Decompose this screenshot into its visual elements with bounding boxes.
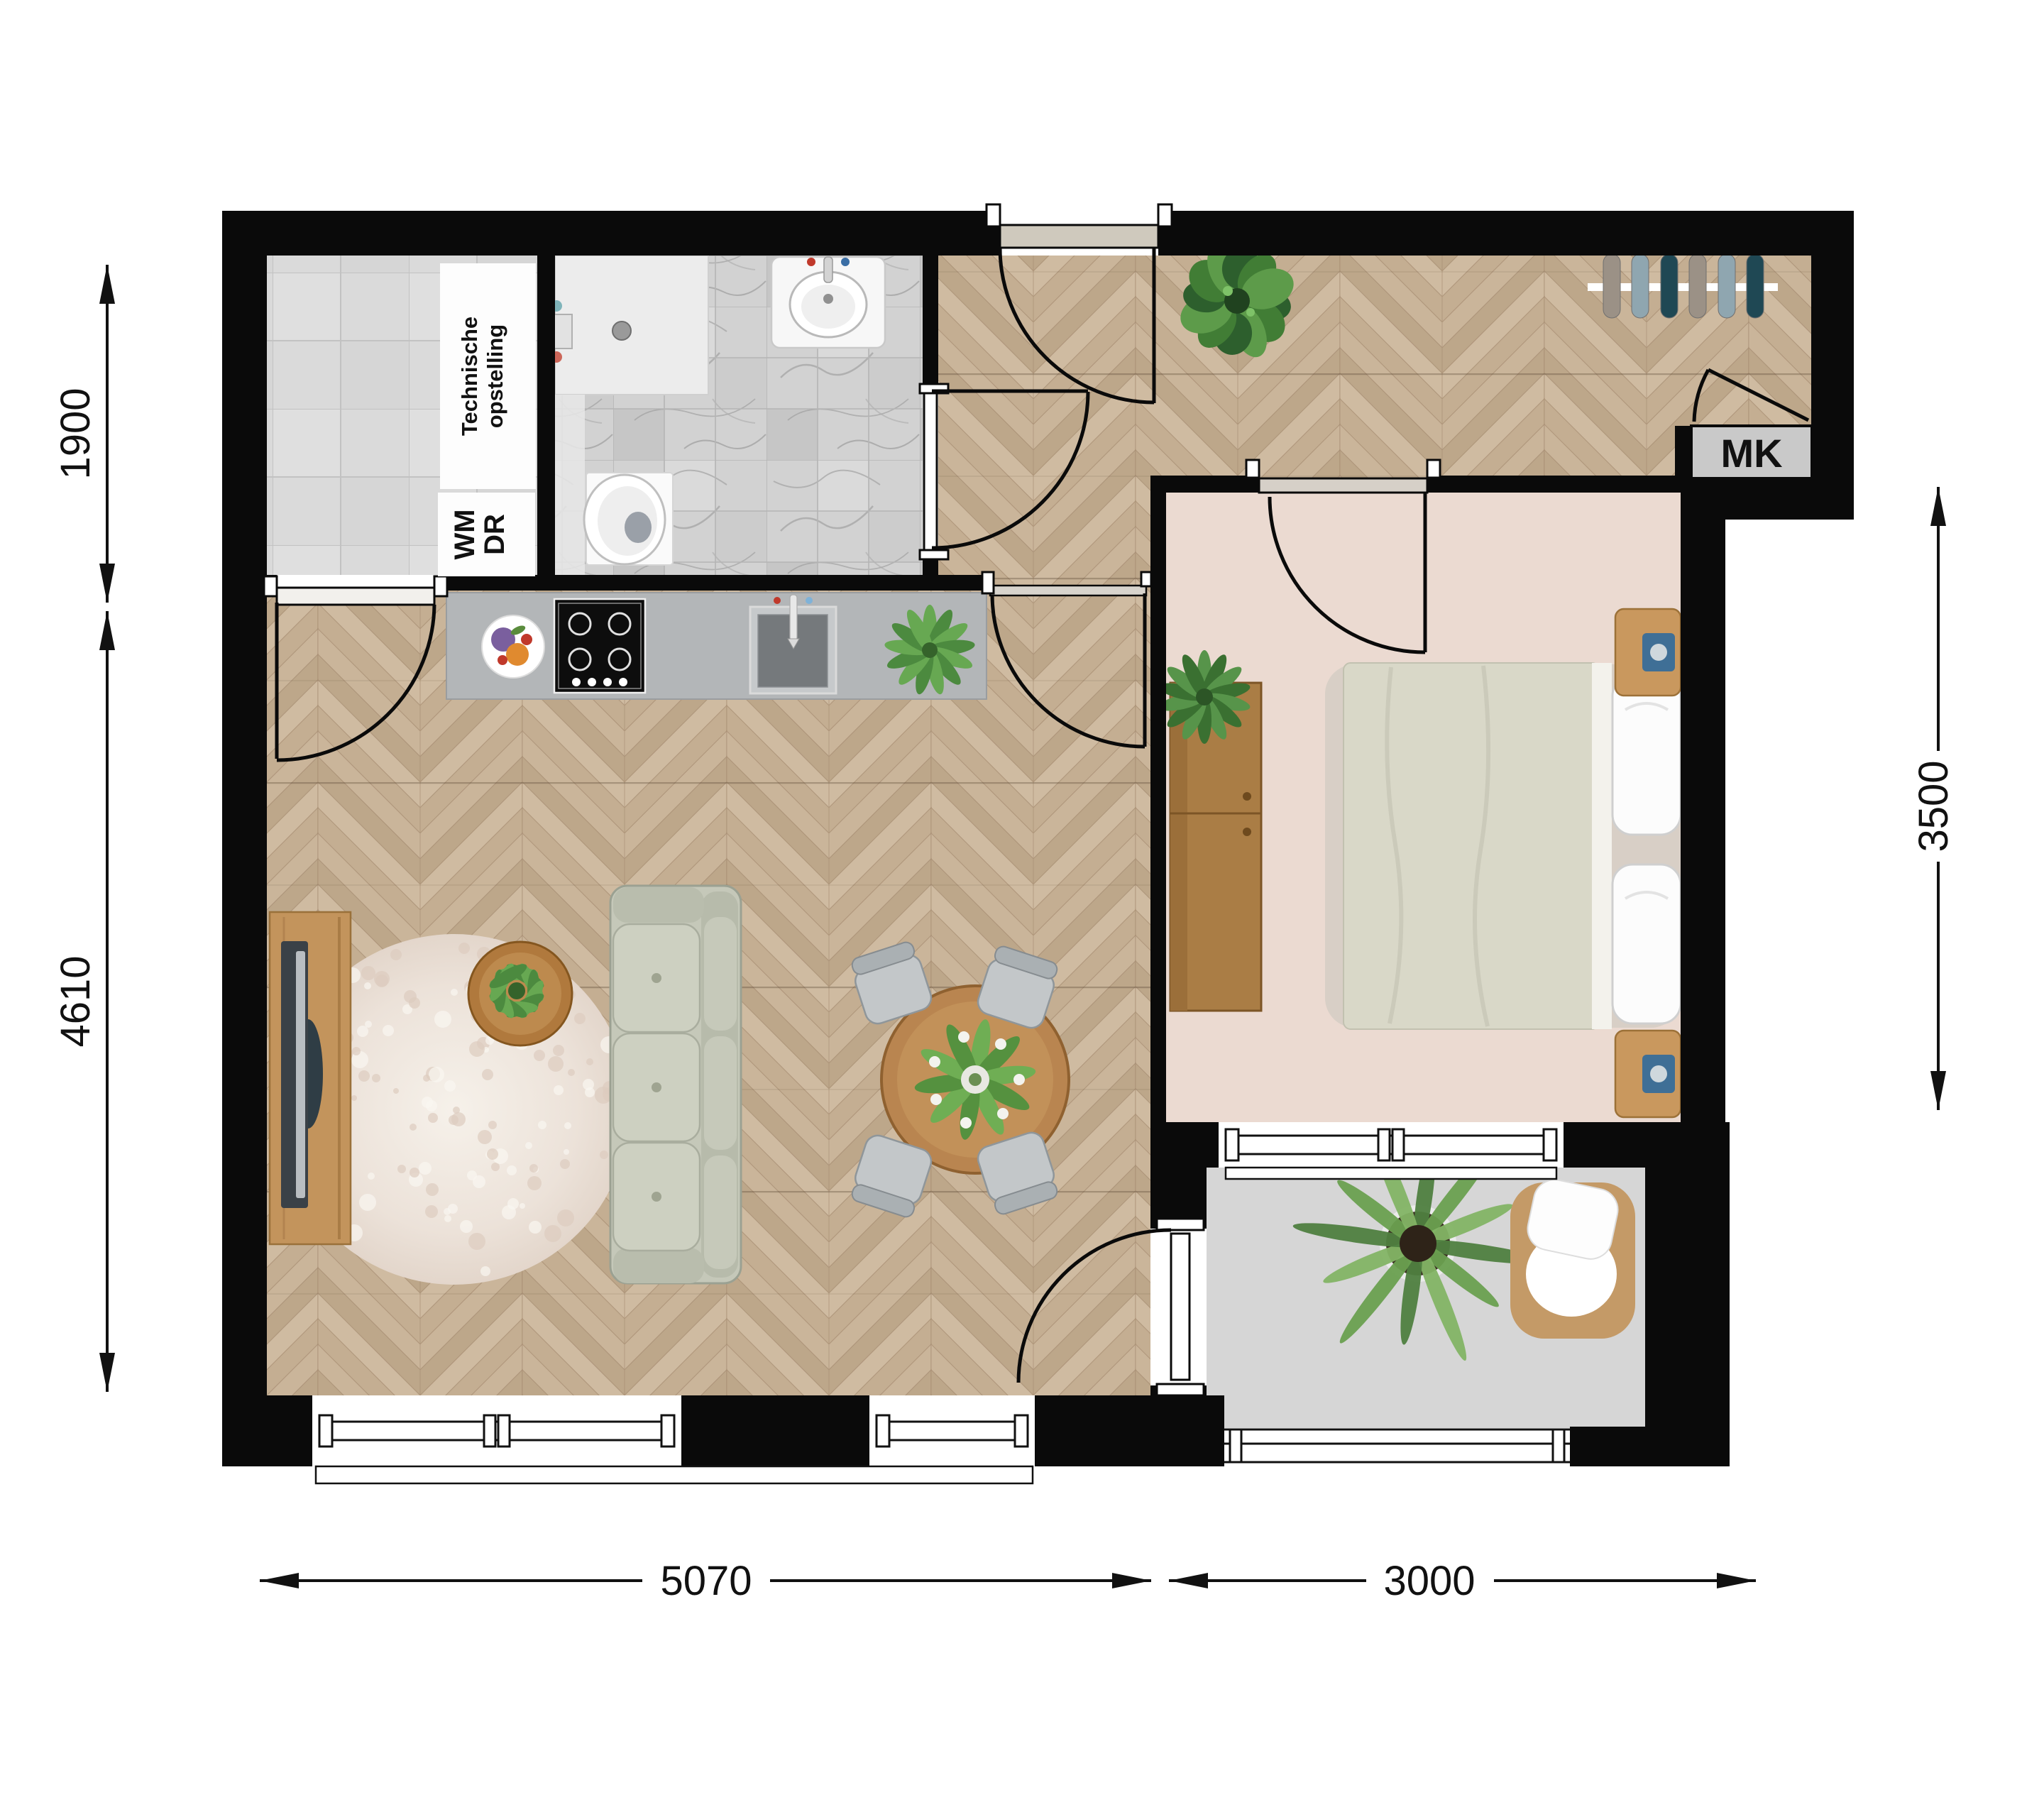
svg-text:1900: 1900 [53,388,99,479]
svg-text:3000: 3000 [1383,1558,1475,1604]
svg-text:WMDR: WMDR [449,509,510,559]
svg-text:Technischeopstelling: Technischeopstelling [457,317,507,436]
svg-text:MK: MK [1720,431,1782,476]
svg-text:3500: 3500 [1911,760,1957,852]
svg-text:5070: 5070 [660,1558,752,1604]
svg-text:4610: 4610 [53,955,99,1047]
